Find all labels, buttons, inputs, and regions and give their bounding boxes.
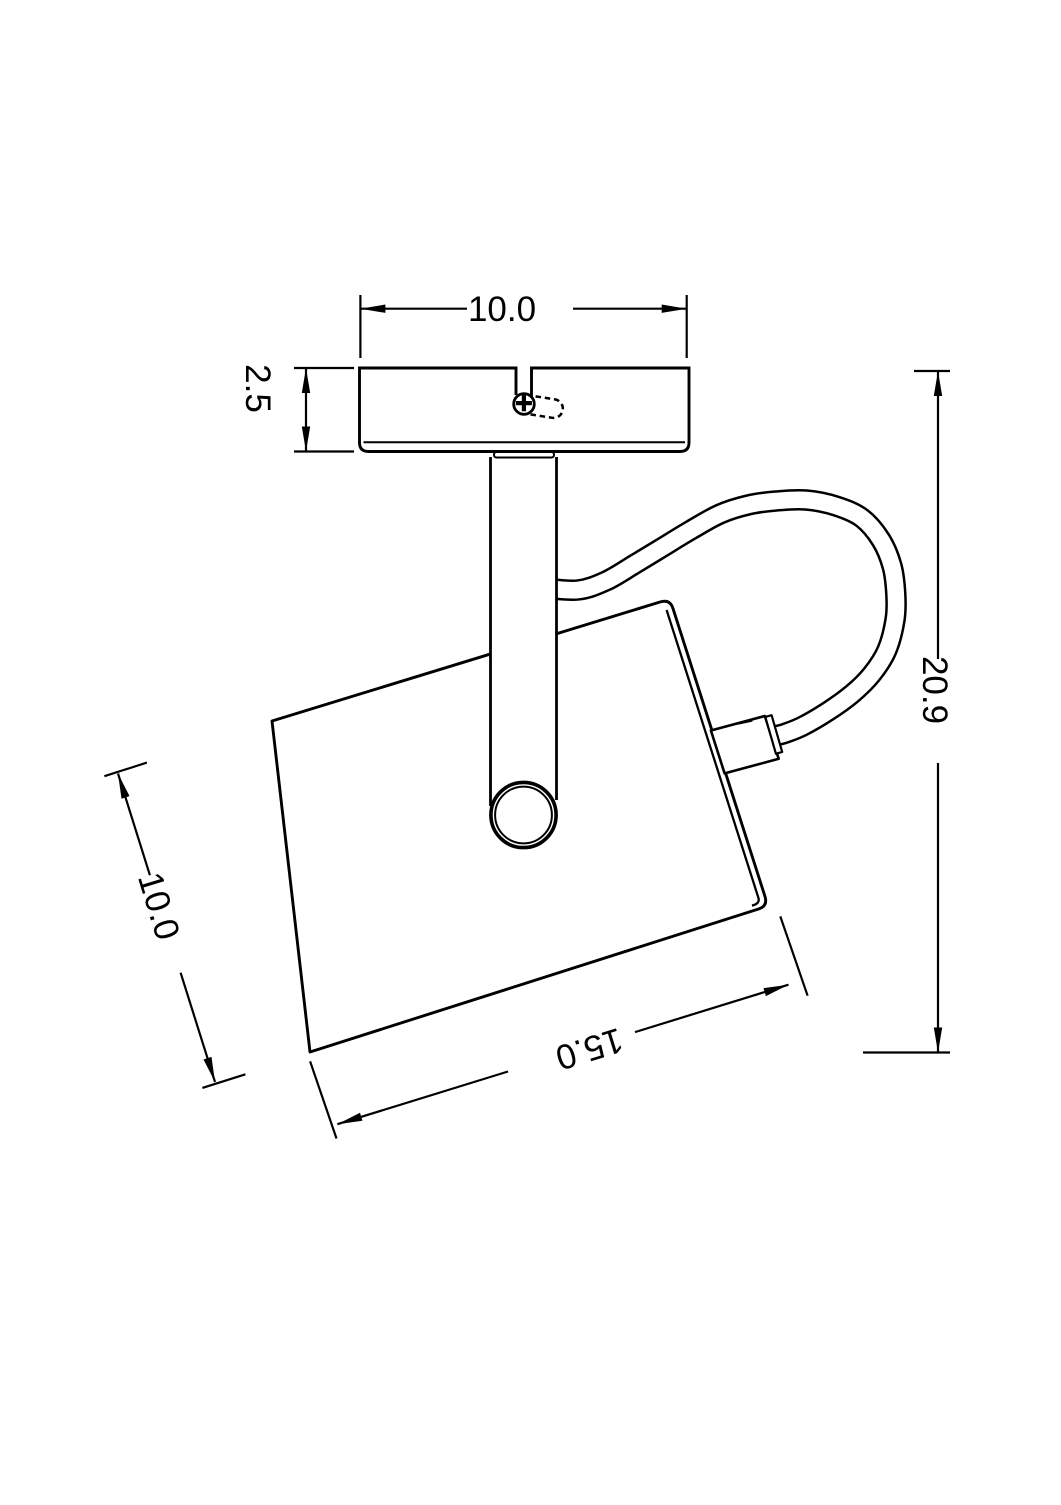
svg-text:2.5: 2.5 <box>238 364 277 413</box>
svg-text:10.0: 10.0 <box>468 290 536 329</box>
svg-text:20.9: 20.9 <box>915 656 954 724</box>
